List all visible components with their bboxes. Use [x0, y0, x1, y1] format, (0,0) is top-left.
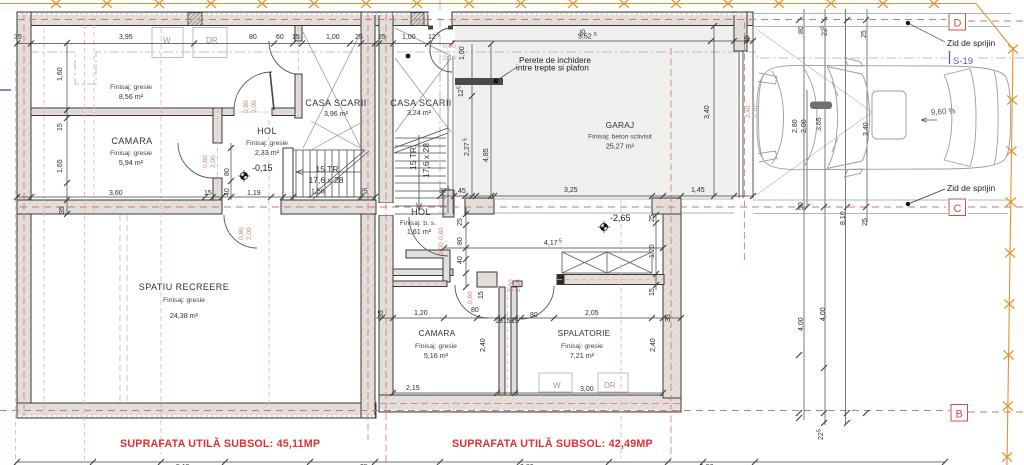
svg-text:2,80: 2,80: [792, 119, 799, 133]
svg-text:2,00: 2,00: [801, 119, 808, 133]
svg-text:25: 25: [862, 218, 869, 226]
svg-text:0,80: 0,80: [438, 227, 445, 240]
svg-text:80: 80: [224, 168, 231, 176]
svg-text:17,6 x 28: 17,6 x 28: [421, 143, 431, 178]
svg-text:2,05: 2,05: [585, 310, 599, 317]
svg-text:1,61 m²: 1,61 m²: [407, 227, 432, 236]
svg-text:45: 45: [458, 188, 466, 195]
svg-text:D: D: [954, 18, 962, 30]
svg-text:HOL: HOL: [411, 207, 431, 217]
svg-text:35: 35: [14, 34, 22, 41]
svg-text:Finisaj: gresie: Finisaj: gresie: [415, 343, 457, 350]
svg-text:C: C: [954, 203, 962, 215]
svg-text:37: 37: [439, 188, 447, 195]
svg-text:5: 5: [437, 33, 440, 39]
svg-text:Finisaj: gresie: Finisaj: gresie: [246, 140, 288, 147]
svg-text:2,10: 2,10: [515, 279, 522, 292]
svg-text:5: 5: [594, 32, 597, 38]
svg-text:3,40: 3,40: [704, 105, 711, 119]
svg-text:2,40: 2,40: [480, 338, 487, 352]
svg-text:CAMARA: CAMARA: [111, 136, 152, 146]
svg-text:25: 25: [360, 189, 368, 196]
svg-text:CAMARA: CAMARA: [419, 328, 456, 338]
svg-text:25: 25: [649, 214, 656, 222]
svg-text:15: 15: [503, 318, 511, 325]
svg-text:0,80: 0,80: [202, 155, 209, 168]
svg-text:15: 15: [478, 291, 485, 299]
svg-text:2,10: 2,10: [443, 55, 456, 62]
svg-text:15: 15: [204, 190, 212, 197]
svg-text:SUPRAFATA UTILĂ SUBSOL: 42,49M: SUPRAFATA UTILĂ SUBSOL: 42,49MP: [452, 437, 653, 450]
svg-text:Finisaj: beton sclivisit: Finisaj: beton sclivisit: [588, 134, 652, 141]
svg-text:80: 80: [471, 307, 479, 314]
svg-text:4,17: 4,17: [544, 240, 558, 247]
svg-text:-0,15: -0,15: [252, 163, 273, 173]
svg-text:0,80: 0,80: [243, 100, 250, 113]
svg-text:35: 35: [378, 310, 385, 318]
svg-text:3,00: 3,00: [580, 386, 594, 393]
svg-text:5: 5: [559, 239, 562, 245]
svg-text:25: 25: [355, 34, 363, 41]
svg-text:Finisaj: gresie: Finisaj: gresie: [163, 297, 205, 304]
svg-text:22: 22: [818, 432, 825, 440]
svg-text:2,33 m²: 2,33 m²: [255, 148, 280, 157]
svg-text:5: 5: [447, 187, 450, 193]
svg-text:5: 5: [463, 138, 469, 141]
svg-text:15: 15: [649, 288, 656, 296]
svg-text:1,56: 1,56: [311, 189, 325, 196]
svg-text:60: 60: [276, 34, 284, 41]
svg-text:2,40: 2,40: [745, 105, 752, 118]
svg-text:25: 25: [861, 30, 868, 38]
svg-text:0,80: 0,80: [443, 43, 456, 50]
svg-text:-2,65: -2,65: [610, 213, 631, 223]
svg-text:SPALATORIE: SPALATORIE: [558, 328, 611, 338]
svg-text:80: 80: [530, 312, 538, 319]
svg-text:5,16 m²: 5,16 m²: [424, 351, 449, 360]
svg-text:35: 35: [580, 29, 587, 37]
svg-text:80: 80: [457, 237, 464, 245]
svg-text:80: 80: [798, 26, 805, 34]
svg-text:Zid de sprijin: Zid de sprijin: [947, 183, 995, 193]
svg-text:1,65: 1,65: [57, 159, 64, 173]
svg-text:12: 12: [428, 34, 436, 41]
svg-text:HOL: HOL: [257, 126, 277, 136]
svg-text:25: 25: [457, 218, 464, 226]
svg-text:3,96 m²: 3,96 m²: [324, 109, 349, 118]
svg-text:3,25: 3,25: [564, 187, 578, 194]
svg-text:Finisaj: gresie: Finisaj: gresie: [561, 343, 603, 350]
svg-text:2,40: 2,40: [650, 338, 657, 352]
svg-text:2,15: 2,15: [406, 385, 420, 392]
svg-text:W: W: [553, 381, 561, 390]
svg-text:35: 35: [744, 35, 751, 43]
svg-text:35: 35: [59, 206, 66, 214]
svg-text:Finisaj: gresie: Finisaj: gresie: [110, 84, 152, 91]
svg-text:1,45: 1,45: [691, 187, 705, 194]
svg-text:3,95: 3,95: [119, 34, 133, 41]
svg-text:3,24 m²: 3,24 m²: [407, 108, 432, 117]
svg-text:8,56 m²: 8,56 m²: [119, 92, 144, 101]
svg-text:CASA SCARII: CASA SCARII: [390, 98, 451, 108]
svg-text:SUPRAFATA UTILĂ SUBSOL: 45,11M: SUPRAFATA UTILĂ SUBSOL: 45,11MP: [120, 437, 320, 450]
svg-text:4,00: 4,00: [820, 307, 827, 321]
svg-text:0,80: 0,80: [238, 227, 245, 240]
svg-text:1,20: 1,20: [414, 310, 428, 317]
svg-text:15: 15: [292, 34, 300, 41]
svg-text:40: 40: [224, 188, 231, 196]
svg-text:0,80: 0,80: [508, 279, 515, 292]
svg-text:35: 35: [665, 314, 672, 322]
svg-text:Finisaj: gresie: Finisaj: gresie: [110, 150, 152, 157]
svg-text:4,00: 4,00: [798, 317, 805, 331]
svg-text:1,60: 1,60: [57, 67, 64, 81]
svg-text:SPATIU RECREERE: SPATIU RECREERE: [139, 282, 229, 292]
svg-text:40: 40: [457, 256, 464, 264]
svg-text:15: 15: [511, 318, 519, 325]
svg-text:25,27 m²: 25,27 m²: [606, 142, 635, 151]
svg-text:15 TR: 15 TR: [408, 147, 418, 170]
svg-text:50: 50: [798, 202, 805, 210]
svg-text:80: 80: [249, 34, 257, 41]
svg-text:1,00: 1,00: [326, 34, 340, 41]
svg-text:1,20: 1,20: [649, 244, 656, 258]
svg-text:17,6 x 28: 17,6 x 28: [309, 175, 344, 185]
svg-text:2,00: 2,00: [246, 227, 253, 240]
svg-text:S-19: S-19: [953, 56, 973, 67]
svg-text:15 TR: 15 TR: [316, 164, 339, 174]
svg-text:4,85: 4,85: [483, 148, 490, 162]
svg-text:1,00: 1,00: [459, 46, 466, 60]
svg-text:3,60: 3,60: [109, 190, 123, 197]
svg-text:2,10: 2,10: [752, 105, 759, 118]
svg-text:DR: DR: [604, 381, 616, 390]
svg-text:25: 25: [378, 34, 386, 41]
svg-text:5: 5: [820, 26, 826, 29]
svg-text:2,00: 2,00: [210, 155, 217, 168]
svg-text:5: 5: [457, 86, 463, 89]
svg-text:B: B: [956, 409, 963, 421]
svg-text:24,38 m²: 24,38 m²: [170, 311, 199, 320]
svg-text:2,27: 2,27: [464, 142, 471, 156]
svg-text:2,00: 2,00: [251, 100, 258, 113]
svg-text:2,00: 2,00: [438, 242, 445, 255]
svg-text:7,21 m²: 7,21 m²: [570, 351, 595, 360]
svg-text:5,94 m²: 5,94 m²: [119, 158, 144, 167]
svg-text:Zid de sprijin: Zid de sprijin: [947, 38, 995, 48]
svg-text:0,80: 0,80: [467, 291, 474, 304]
svg-text:5: 5: [817, 429, 823, 432]
svg-text:intre trepte si plafon: intre trepte si plafon: [516, 63, 589, 73]
svg-text:GARAJ: GARAJ: [606, 120, 635, 130]
svg-text:Finisaj: b. s.: Finisaj: b. s.: [400, 220, 436, 227]
svg-text:15: 15: [495, 318, 503, 325]
svg-text:1,19: 1,19: [247, 190, 261, 197]
svg-text:15: 15: [57, 123, 64, 131]
svg-text:1,00: 1,00: [402, 34, 416, 41]
svg-text:CASA SCARII: CASA SCARII: [305, 98, 366, 108]
svg-text:12: 12: [458, 89, 465, 97]
